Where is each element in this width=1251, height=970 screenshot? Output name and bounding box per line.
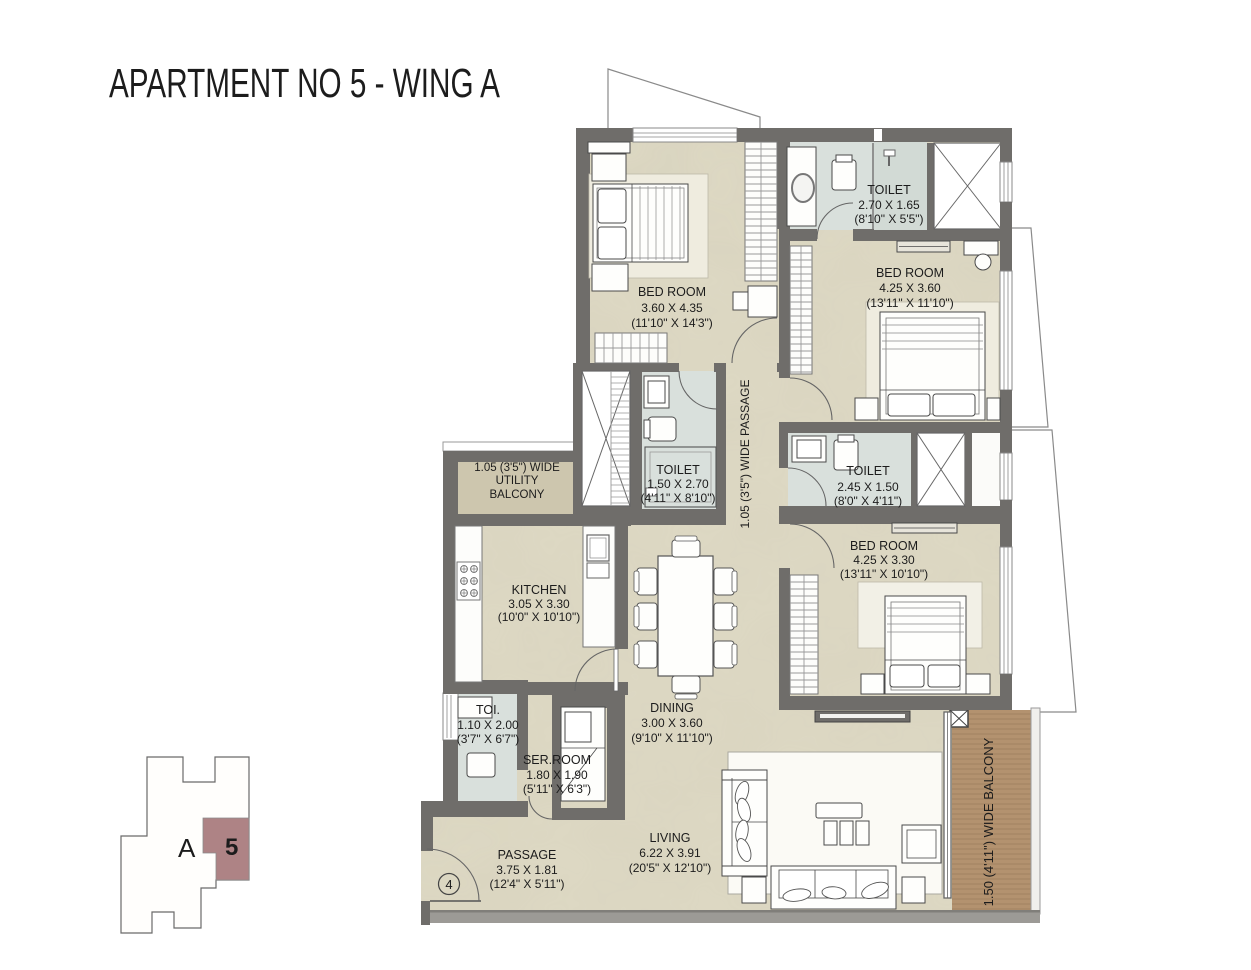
svg-text:1.05 (3'5") WIDE: 1.05 (3'5") WIDE [474,462,560,474]
svg-text:KITCHEN: KITCHEN [512,583,567,597]
svg-text:(4'11" X 8'10"): (4'11" X 8'10") [641,491,716,505]
svg-text:(5'11" X 6'3"): (5'11" X 6'3") [523,782,591,796]
svg-text:BALCONY: BALCONY [490,489,545,501]
svg-text:4.25 X 3.30: 4.25 X 3.30 [853,553,915,567]
svg-text:(9'10" X 11'10"): (9'10" X 11'10") [631,731,713,745]
svg-text:(13'11" X 11'10"): (13'11" X 11'10") [866,296,953,310]
svg-text:DINING: DINING [650,701,694,715]
svg-text:1.50 (4'11") WIDE BALCONY: 1.50 (4'11") WIDE BALCONY [981,737,996,906]
svg-text:BED ROOM: BED ROOM [638,285,706,299]
svg-text:(3'7" X 6'7"): (3'7" X 6'7") [457,732,519,746]
svg-text:APARTMENT NO 5 - WING A: APARTMENT NO 5 - WING A [109,60,500,106]
svg-text:2.45 X 1.50: 2.45 X 1.50 [837,480,899,494]
svg-text:2.70 X 1.65: 2.70 X 1.65 [858,198,920,212]
svg-text:4: 4 [445,877,452,892]
svg-text:TOILET: TOILET [867,183,911,197]
svg-text:(13'11" X 10'10"): (13'11" X 10'10") [840,567,928,581]
svg-text:(10'0" X 10'10"): (10'0" X 10'10") [498,610,580,624]
svg-text:5: 5 [225,834,238,861]
svg-text:BED ROOM: BED ROOM [850,539,918,553]
svg-text:TOI.: TOI. [476,703,500,717]
svg-text:BED ROOM: BED ROOM [876,266,944,280]
svg-text:LIVING: LIVING [650,831,691,845]
svg-text:6.22 X 3.91: 6.22 X 3.91 [639,846,701,860]
svg-text:PASSAGE: PASSAGE [498,848,557,862]
svg-text:TOILET: TOILET [656,463,700,477]
svg-text:1.50 X 2.70: 1.50 X 2.70 [647,477,709,491]
svg-text:A: A [178,833,196,863]
svg-text:SER.ROOM: SER.ROOM [523,753,591,767]
svg-text:1.80 X 1.90: 1.80 X 1.90 [526,768,588,782]
svg-text:3.60 X 4.35: 3.60 X 4.35 [641,301,703,315]
svg-text:3.00 X 3.60: 3.00 X 3.60 [641,716,703,730]
svg-text:1.05 (3'5") WIDE PASSAGE: 1.05 (3'5") WIDE PASSAGE [738,379,752,528]
svg-text:(8'10" X 5'5"): (8'10" X 5'5") [854,212,923,226]
svg-text:UTILITY: UTILITY [496,475,539,487]
svg-text:(20'5" X 12'10"): (20'5" X 12'10") [629,861,711,875]
svg-text:TOILET: TOILET [846,464,890,478]
svg-text:4.25 X 3.60: 4.25 X 3.60 [879,281,941,295]
svg-text:(11'10" X 14'3"): (11'10" X 14'3") [631,316,713,330]
svg-text:(12'4" X 5'11"): (12'4" X 5'11") [490,877,565,891]
svg-text:3.05 X 3.30: 3.05 X 3.30 [508,597,570,611]
svg-text:(8'0" X 4'11"): (8'0" X 4'11") [834,494,902,508]
svg-text:1.10 X 2.00: 1.10 X 2.00 [457,718,519,732]
svg-text:3.75 X 1.81: 3.75 X 1.81 [496,863,558,877]
